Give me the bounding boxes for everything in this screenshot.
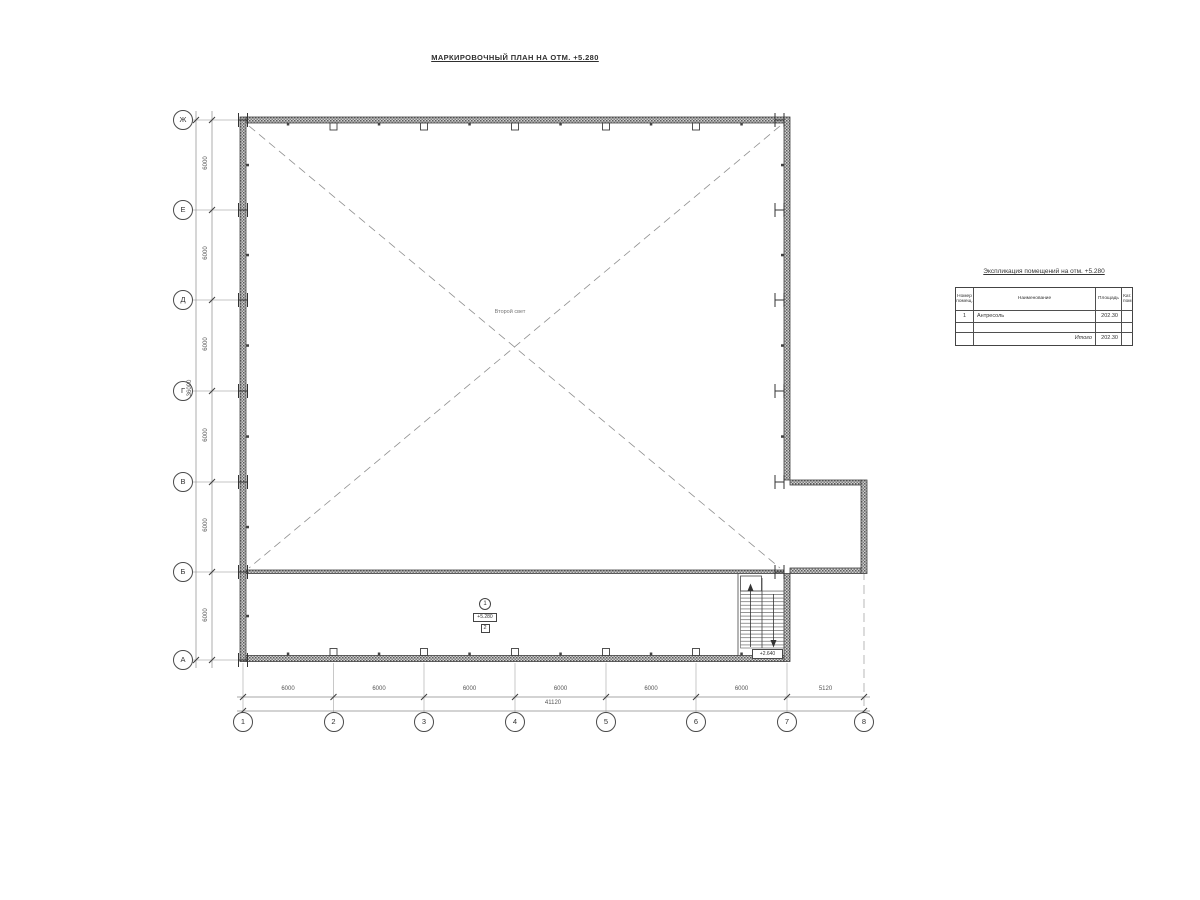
- void-label: Второй свет: [480, 309, 540, 315]
- dim-bottom-total: 41120: [533, 700, 573, 706]
- dim-left-seg-5: 6000: [203, 505, 209, 545]
- void-diagonal-lines: [249, 126, 780, 568]
- axis-bubble-1: 1: [233, 712, 253, 732]
- square-columns: [330, 123, 700, 656]
- dim-bottom-seg-2: 6000: [359, 686, 399, 692]
- dim-left-seg-1: 6000: [203, 143, 209, 183]
- cell-total-cat: [1122, 333, 1133, 345]
- col-header-name: Наименование: [974, 288, 1096, 311]
- axis-bubble-v: В: [173, 472, 193, 492]
- dim-bottom-seg-3: 6000: [450, 686, 490, 692]
- cell-room-cat: [1122, 311, 1133, 323]
- col-header-number: Номер помещ.: [956, 288, 974, 311]
- axis-bubble-6: 6: [686, 712, 706, 732]
- axis-bubble-d: Д: [173, 290, 193, 310]
- room-category-mark: 2: [481, 624, 490, 633]
- explication-title: Экспликация помещений на отм. +5.280: [954, 268, 1134, 275]
- walls: [240, 117, 867, 662]
- dim-bottom-seg-4: 6000: [541, 686, 581, 692]
- explication-table: Номер помещ. Наименование Площадь Кат. п…: [955, 287, 1133, 346]
- room-number-bubble: 1: [479, 598, 491, 610]
- cell-empty-area: [1096, 323, 1122, 333]
- sheet-title: МАРКИРОВОЧНЫЙ ПЛАН НА ОТМ. +5.280: [315, 53, 715, 62]
- cell-total-area: 202.30: [1096, 333, 1122, 345]
- dim-left-seg-4: 6000: [203, 415, 209, 455]
- axis-bubble-a: А: [173, 650, 193, 670]
- dim-bottom-seg-6: 6000: [722, 686, 762, 692]
- dim-bottom-seg-5: 6000: [631, 686, 671, 692]
- axis-bubble-7: 7: [777, 712, 797, 732]
- dim-left-seg-6: 6000: [203, 595, 209, 635]
- axis-bubble-4: 4: [505, 712, 525, 732]
- col-header-cat: Кат. пом: [1122, 288, 1133, 311]
- cell-empty-number: [956, 323, 974, 333]
- axis-bubble-e: Е: [173, 200, 193, 220]
- room-elevation-mark: +5.280: [473, 613, 497, 622]
- cell-empty-cat: [1122, 323, 1133, 333]
- columns: [239, 113, 785, 667]
- axis-bubble-8: 8: [854, 712, 874, 732]
- wall-ticks: [246, 123, 784, 656]
- axis-bubble-5: 5: [596, 712, 616, 732]
- plan-linework: [0, 0, 1200, 900]
- cell-total-label: Итого: [974, 333, 1096, 345]
- cell-room-number: 1: [956, 311, 974, 323]
- axis-bubble-zh: Ж: [173, 110, 193, 130]
- drawing-sheet: МАРКИРОВОЧНЫЙ ПЛАН НА ОТМ. +5.280 Ж Е Д …: [0, 0, 1200, 900]
- cell-total-spacer: [956, 333, 974, 345]
- dim-left-seg-2: 6000: [203, 233, 209, 273]
- dim-bottom-seg-1: 6000: [268, 686, 308, 692]
- cell-room-name: Антресоль: [974, 311, 1096, 323]
- axis-bubble-b: Б: [173, 562, 193, 582]
- staircase: [738, 574, 784, 656]
- axis-bubble-3: 3: [414, 712, 434, 732]
- dim-bottom-seg-7: 5120: [806, 686, 846, 692]
- axis-bubble-2: 2: [324, 712, 344, 732]
- dim-left-seg-3: 6000: [203, 324, 209, 364]
- dim-left-total: 36000: [187, 368, 193, 408]
- cell-empty-name: [974, 323, 1096, 333]
- stair-landing-elevation: +2.640: [752, 649, 783, 659]
- cell-room-area: 202.30: [1096, 311, 1122, 323]
- col-header-area: Площадь: [1096, 288, 1122, 311]
